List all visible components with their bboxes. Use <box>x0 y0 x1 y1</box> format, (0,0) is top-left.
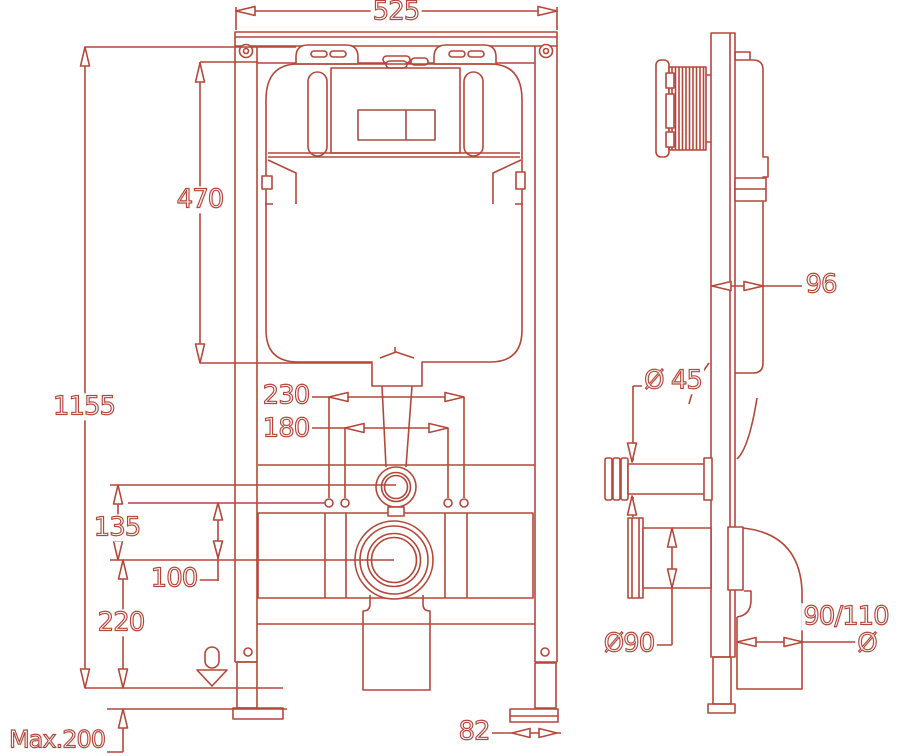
flush-pipe <box>382 386 412 467</box>
pipe-end-flange <box>704 458 712 500</box>
flange-mark <box>666 73 674 88</box>
bar-foot-tube <box>713 657 731 704</box>
flush-pipe-side <box>605 458 712 500</box>
pipe-ring <box>605 458 612 500</box>
outlet-chevron <box>380 347 414 358</box>
dim-100-label: 100 <box>149 565 200 592</box>
dim-frame-width-label: 525 <box>371 0 422 26</box>
mounting-frame <box>233 32 558 722</box>
tab-slot <box>468 51 484 57</box>
right-leg-hole <box>541 648 549 656</box>
elbow-flange <box>728 527 743 590</box>
front-view <box>233 32 558 722</box>
dim-135-label: 135 <box>92 514 143 541</box>
dim-max200-lines <box>107 709 287 752</box>
drain-body <box>643 528 711 588</box>
dia-symbol-label: Ø <box>855 630 878 657</box>
fixing-hole <box>325 499 333 507</box>
tab-slot <box>330 51 346 57</box>
drain-outlet-assembly <box>355 521 433 690</box>
dim-total-height-label: 1155 <box>51 393 117 420</box>
technical-drawing-page: 525 1155 470 230 180 135 100 220 Max.200… <box>0 0 898 756</box>
side-slot-left <box>308 72 327 156</box>
dim-max200-label: Max.200 <box>7 727 107 752</box>
dim-bolt-inner-label: 180 <box>261 415 312 442</box>
clip-right <box>516 172 525 189</box>
cistern-profile <box>735 60 768 373</box>
right-foot-tube <box>535 663 556 708</box>
side-slot-right <box>464 72 483 156</box>
dim-waste-dia-label: 90/110 <box>801 603 890 630</box>
dim-470-lines <box>200 62 371 363</box>
fixing-hole <box>444 499 452 507</box>
waste-elbow <box>728 527 802 689</box>
dim-flush-pipe-dia-label: Ø 45 <box>642 367 704 394</box>
dim-frame-depth-label: 96 <box>803 271 838 298</box>
cistern <box>262 45 525 386</box>
flange-mark <box>666 132 674 147</box>
drain-flange <box>628 518 643 598</box>
tab-slot <box>311 51 327 57</box>
fixing-hole <box>341 499 349 507</box>
drain-pipe-lower <box>363 595 430 690</box>
pipe-ring <box>613 458 620 500</box>
drawing-canvas <box>0 0 898 756</box>
flush-pipe-assembly <box>325 386 468 516</box>
pipe-ring <box>621 458 628 500</box>
left-foot-tube <box>237 662 257 708</box>
pipe-body <box>628 464 706 494</box>
dim-135-lines <box>110 485 396 560</box>
clip-left <box>262 176 272 189</box>
dim-outlet-dia-label: Ø90 <box>602 630 657 657</box>
dim-cistern-height-label: 470 <box>175 186 226 213</box>
flush-connector-tab <box>388 507 404 516</box>
bellows-actuator <box>656 60 711 157</box>
fixing-hole <box>460 499 468 507</box>
bar-foot-plate <box>708 704 735 713</box>
tab-slot <box>449 51 465 57</box>
dimension-lines <box>81 7 857 753</box>
flush-plate <box>358 110 435 140</box>
drain-outlet-side <box>628 518 711 598</box>
dim-foot-width-label: 82 <box>456 718 491 745</box>
left-leg-hole <box>244 648 252 656</box>
dim-220-label: 220 <box>96 609 147 636</box>
top-tab <box>735 52 750 60</box>
dim-bolt-outer-label: 230 <box>261 382 312 409</box>
flange-mark <box>666 94 674 128</box>
right-corner-screw <box>540 45 553 58</box>
elbow-body <box>737 528 802 689</box>
floor-level-symbol <box>197 647 227 686</box>
